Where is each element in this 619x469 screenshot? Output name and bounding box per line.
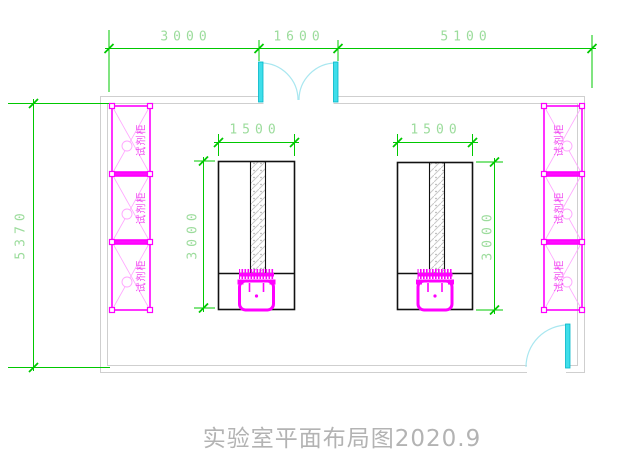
dim-label-right-bench-width: 1500: [410, 123, 461, 138]
dim-label-top-door: 1600: [273, 30, 324, 45]
left-lab-bench: [219, 162, 295, 311]
cabinet-label: 试剂柜: [551, 192, 566, 225]
floorplan-drawing: [0, 0, 619, 469]
drawing-title: 实验室平面布局图2020.9: [203, 419, 481, 453]
right-sink: [416, 269, 454, 310]
cabinet-label: 试剂柜: [133, 192, 148, 225]
dim-label-top-right: 5100: [440, 30, 491, 45]
cabinet-label: 试剂柜: [551, 260, 566, 293]
room-walls: [101, 94, 585, 374]
cabinet-label: 试剂柜: [551, 124, 566, 157]
cad-canvas: 3000 1600 5100 5370 1500 3000 1500 3000 …: [0, 0, 619, 469]
left-sink: [238, 269, 276, 310]
dim-label-left-bench-depth: 3000: [186, 208, 201, 259]
dim-label-left-bench-width: 1500: [229, 123, 280, 138]
right-lab-bench: [398, 163, 473, 311]
cabinet-label: 试剂柜: [133, 124, 148, 157]
cabinet-label: 试剂柜: [133, 260, 148, 293]
dim-label-top-left: 3000: [160, 30, 211, 45]
dim-label-right-bench-depth: 3000: [481, 209, 496, 260]
dim-label-left-wall: 5370: [14, 208, 29, 259]
